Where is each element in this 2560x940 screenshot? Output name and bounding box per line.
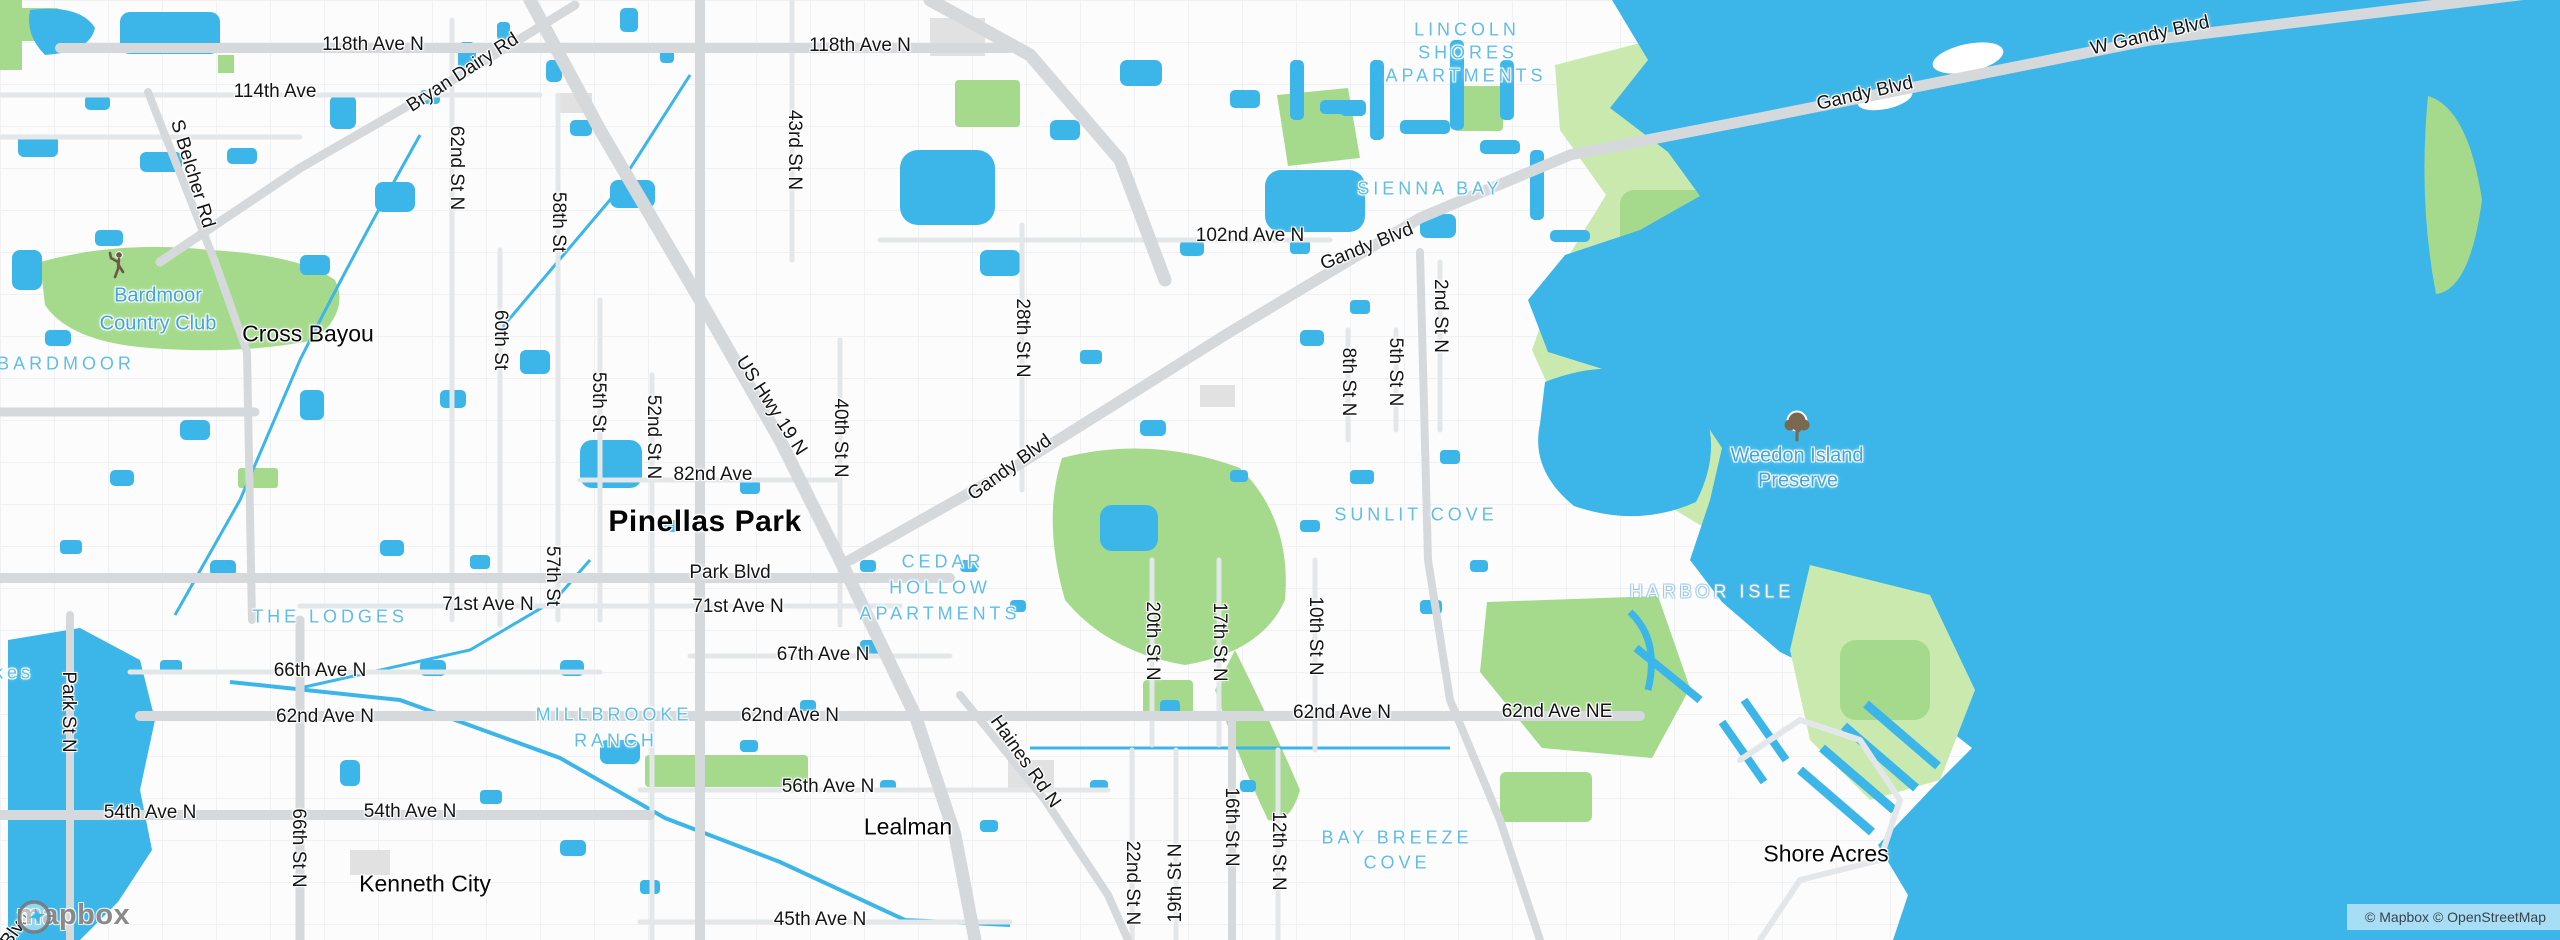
map-base-layer [0, 0, 2560, 940]
map-attribution[interactable]: © Mapbox © OpenStreetMap [2347, 904, 2560, 930]
mapbox-compass-icon [16, 899, 52, 935]
mapbox-logo[interactable]: mapbox [16, 899, 130, 932]
map-canvas[interactable]: 118th Ave N114th AveBryan Dairy RdS Belc… [0, 0, 2560, 940]
riviera-bay [1538, 368, 1711, 516]
attribution-text: © Mapbox © OpenStreetMap [2365, 909, 2546, 925]
